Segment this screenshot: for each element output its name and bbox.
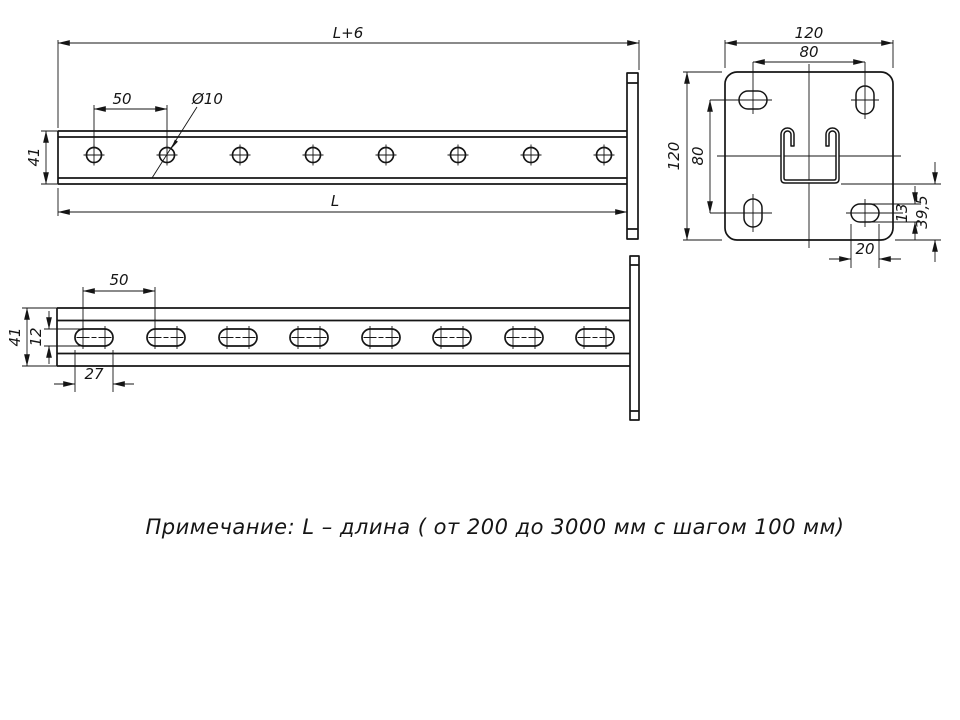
dim-label-slot-pitch: 50 (109, 271, 128, 289)
drawing-sheet: L+6 50 Ø10 41 L (0, 0, 960, 720)
strut-outline (57, 308, 630, 366)
dim-hole-pitch-vertical: 80 (689, 100, 710, 213)
hole-center-mark (594, 145, 615, 166)
round-holes (84, 145, 615, 166)
dim-hole-diameter: Ø10 (152, 90, 223, 178)
side-view: L+6 50 Ø10 41 L (25, 24, 639, 239)
dim-label-length: L (331, 192, 339, 210)
dim-slot-length: 27 (54, 350, 134, 392)
dim-label-plate-slot-length: 20 (855, 240, 874, 258)
hole-center-mark (230, 145, 251, 166)
dim-label-slot-width: 12 (27, 327, 45, 346)
end-plate-edge (627, 73, 638, 239)
dim-length-total: L+6 (58, 24, 639, 128)
hole-center-mark (303, 145, 324, 166)
bottom-view: 50 41 12 27 (6, 256, 639, 420)
dim-label-slot-length: 27 (84, 365, 104, 383)
dim-label-height: 41 (6, 327, 24, 346)
dim-label-hole-pitch: 50 (112, 90, 131, 108)
dim-label-plate-slot-width: 13 (893, 203, 911, 222)
dim-label-hole-pitch-vertical: 80 (689, 146, 707, 165)
hole-center-mark (448, 145, 469, 166)
plate-view: 120 80 120 80 13 39,5 (665, 24, 941, 268)
dim-label-plate-height: 120 (665, 142, 683, 171)
dim-label-plate-width: 120 (795, 24, 824, 42)
hole-center-mark (84, 145, 105, 166)
end-plate-edge (630, 256, 639, 420)
dim-label-height: 41 (25, 147, 43, 166)
dim-label-hole-pitch-horizontal: 80 (799, 43, 818, 61)
strut-outline (58, 131, 627, 184)
dim-label-length-total: L+6 (333, 24, 363, 42)
dim-hole-pitch: 50 (94, 90, 167, 147)
dim-length: L (58, 188, 627, 216)
dim-label-hole-diameter: Ø10 (191, 90, 223, 108)
dim-hole-pitch-horizontal: 80 (753, 43, 865, 62)
hole-center-mark (521, 145, 542, 166)
dim-label-slot-offset: 39,5 (913, 195, 931, 228)
drawing-note: Примечание: L – длина ( от 200 до 3000 м… (145, 515, 844, 539)
slotted-holes (75, 326, 614, 349)
hole-center-mark (376, 145, 397, 166)
technical-drawing: L+6 50 Ø10 41 L (0, 0, 960, 720)
dim-height: 41 (25, 131, 58, 184)
